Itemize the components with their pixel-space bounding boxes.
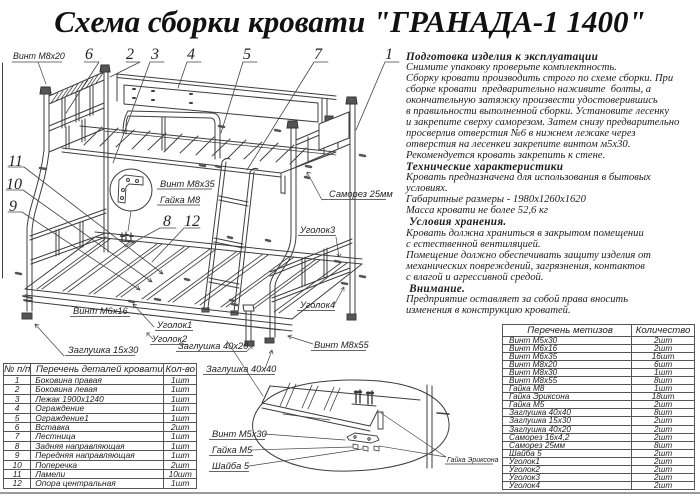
svg-text:Заглушка 15х30: Заглушка 15х30 [68,345,139,355]
svg-text:9: 9 [9,198,17,215]
svg-text:10: 10 [6,176,22,193]
svg-text:Уголок4: Уголок4 [299,300,335,310]
svg-text:8: 8 [163,213,171,230]
svg-text:Заглушка 40х20: Заглушка 40х20 [178,341,249,351]
svg-text:5: 5 [243,46,251,63]
svg-text:7: 7 [314,46,323,63]
svg-text:Уголок1: Уголок1 [156,320,192,330]
svg-text:Гайка Эриксона: Гайка Эриксона [447,456,499,464]
svg-text:Винт М8х55: Винт М8х55 [314,340,370,350]
svg-text:2: 2 [126,46,134,63]
svg-text:4: 4 [187,46,195,63]
svg-text:Винт М5х30: Винт М5х30 [212,429,268,439]
svg-text:11: 11 [8,153,23,170]
svg-text:Винт М8х20: Винт М8х20 [13,51,65,61]
svg-text:6: 6 [85,46,93,63]
svg-text:Винт М8х35: Винт М8х35 [160,179,216,189]
svg-text:Гайка М8: Гайка М8 [160,195,201,205]
svg-text:Гайка М5: Гайка М5 [212,445,253,455]
svg-text:12: 12 [184,213,200,230]
svg-text:1: 1 [385,46,393,63]
svg-text:Заглушка 40х40: Заглушка 40х40 [206,364,277,374]
svg-text:Уголок3: Уголок3 [299,225,336,235]
svg-text:Саморез 25мм: Саморез 25мм [329,189,393,199]
svg-text:3: 3 [150,46,159,63]
svg-text:Шайба 5: Шайба 5 [212,461,250,471]
svg-text:Винт М6х16: Винт М6х16 [73,306,129,316]
